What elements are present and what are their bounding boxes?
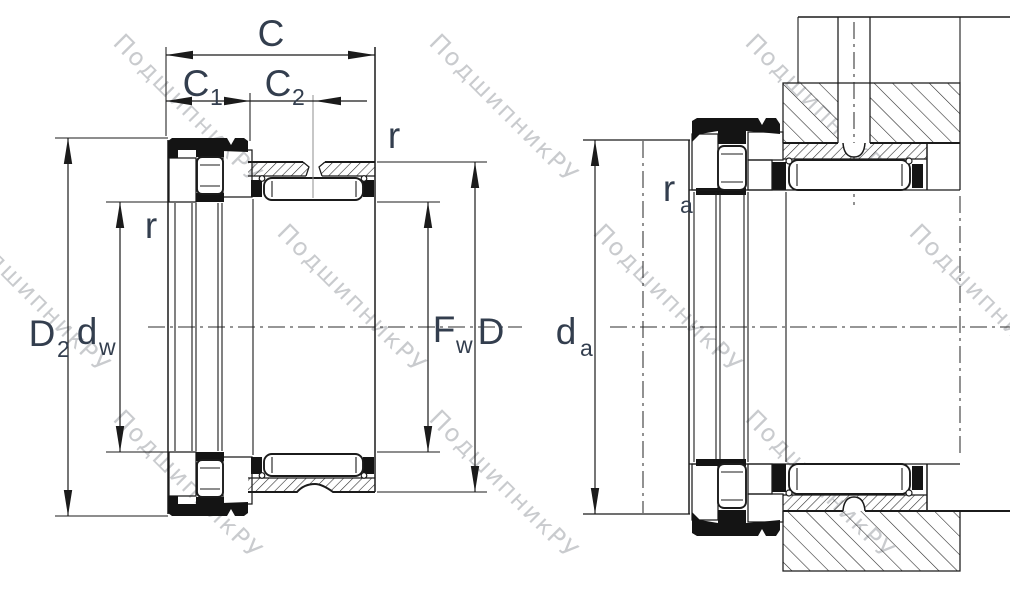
watermark: ПодшипникРУ (424, 404, 585, 565)
axial-roller-bottom-mounted (718, 464, 746, 508)
watermark: ПодшипникРУ (272, 218, 433, 379)
needle-roller-bottom-mounted (789, 464, 910, 494)
thrust-section-bottom-mounted (692, 459, 783, 536)
needle-section-top-mounted (772, 143, 960, 190)
label-c2-sub: 2 (292, 84, 305, 110)
thrust-section-top-mounted (692, 118, 783, 195)
label-c2: C (265, 63, 292, 104)
label-fw-sub: w (455, 332, 473, 358)
needle-roller-top-mounted (789, 160, 910, 190)
label-c: C (258, 13, 285, 54)
label-ra: r (663, 168, 675, 209)
watermark: ПодшипникРУ (904, 218, 1010, 379)
label-r-bore: r (145, 205, 157, 246)
needle-section-bottom (248, 454, 375, 492)
needle-section-bottom-mounted (772, 464, 927, 511)
label-d2-sub: 2 (57, 336, 70, 362)
needle-roller-bottom (264, 454, 363, 476)
label-c1: C (183, 63, 210, 104)
label-d-outer: D (478, 311, 505, 352)
watermark: ПодшипникРУ (424, 28, 585, 189)
label-ra-sub: a (680, 192, 693, 218)
label-da: d (556, 311, 577, 352)
label-fw: F (433, 309, 456, 350)
label-c1-sub: 1 (210, 84, 223, 110)
housing-bottom (783, 511, 1010, 571)
label-da-sub: a (580, 335, 593, 361)
axial-roller-top-mounted (718, 146, 746, 190)
drawing-canvas: ПодшипникРУ ПодшипникРУ ПодшипникРУ Подш… (0, 0, 1010, 604)
label-dw: d (77, 311, 98, 352)
watermark: ПодшипникРУ (588, 218, 749, 379)
label-dw-sub: w (98, 334, 116, 360)
axial-roller-bottom (197, 460, 223, 497)
label-d2: D (29, 313, 56, 354)
needle-section-top (248, 161, 375, 200)
label-r-top: r (388, 115, 400, 156)
bearing-technical-drawing: ПодшипникРУ ПодшипникРУ ПодшипникРУ Подш… (0, 0, 1010, 604)
dimension-da (591, 140, 599, 514)
watermark: ПодшипникРУ (108, 404, 269, 565)
axial-roller-top (197, 157, 223, 194)
